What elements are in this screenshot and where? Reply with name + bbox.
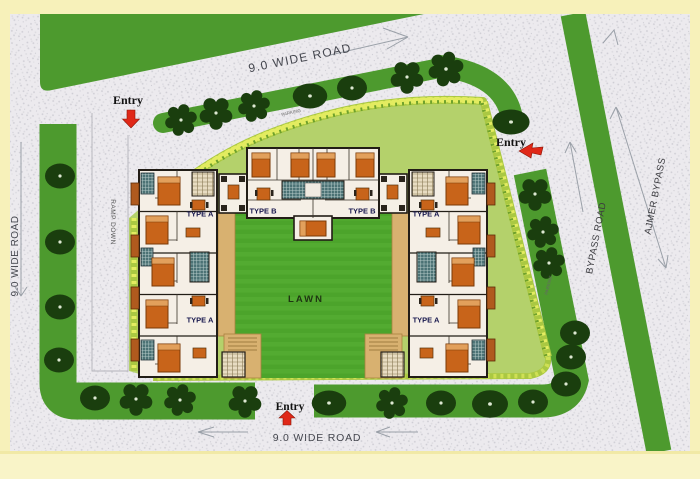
svg-text:Entry: Entry — [276, 401, 305, 413]
svg-text:RAMP DOWN: RAMP DOWN — [109, 199, 116, 245]
svg-text:Entry: Entry — [113, 93, 143, 107]
svg-text:Entry: Entry — [496, 135, 526, 149]
svg-text:TYPE A: TYPE A — [187, 210, 214, 219]
svg-text:TYPE A: TYPE A — [413, 316, 440, 325]
svg-text:TYPE A: TYPE A — [413, 210, 440, 219]
svg-text:9.0 WIDE ROAD: 9.0 WIDE ROAD — [10, 216, 21, 297]
svg-text:TYPE B: TYPE B — [249, 207, 277, 216]
svg-text:9.0 WIDE ROAD: 9.0 WIDE ROAD — [273, 432, 362, 444]
svg-text:TYPE B: TYPE B — [348, 207, 376, 216]
svg-text:LAWN: LAWN — [288, 294, 324, 305]
svg-text:TYPE A: TYPE A — [187, 316, 214, 325]
